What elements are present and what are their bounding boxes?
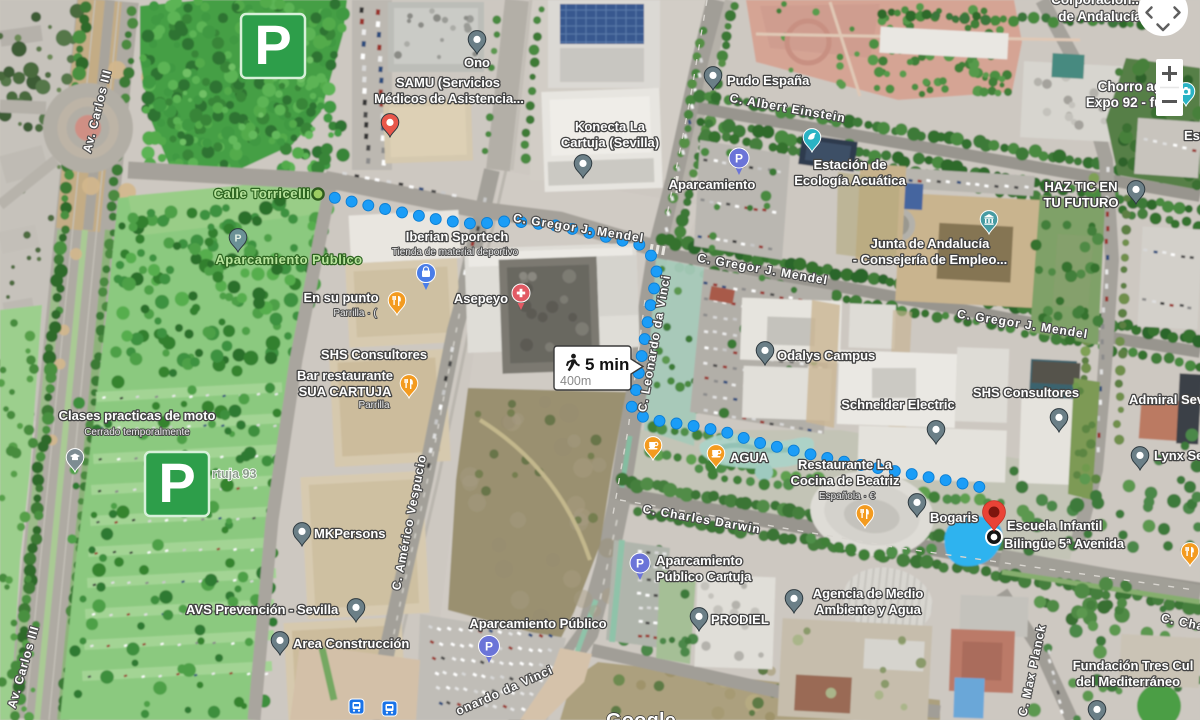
svg-text:Estación de: Estación de — [814, 157, 887, 172]
svg-text:HAZ TIC EN: HAZ TIC EN — [1045, 179, 1118, 194]
svg-text:5 min: 5 min — [585, 355, 629, 374]
svg-text:Escuela Infantil: Escuela Infantil — [1007, 518, 1102, 533]
svg-text:P: P — [636, 557, 644, 571]
svg-text:SAMU (Servicios: SAMU (Servicios — [396, 75, 500, 90]
svg-text:Google: Google — [606, 710, 676, 720]
svg-text:- Consejería de Empleo...: - Consejería de Empleo... — [853, 252, 1008, 267]
svg-text:Fundación Tres Cul: Fundación Tres Cul — [1073, 658, 1194, 673]
svg-text:TU FUTURO: TU FUTURO — [1043, 195, 1118, 210]
svg-text:Restaurante La: Restaurante La — [798, 457, 893, 472]
svg-text:SHS Consultores: SHS Consultores — [321, 347, 427, 362]
svg-text:SUA CARTUJA: SUA CARTUJA — [299, 384, 392, 399]
svg-text:Area Construcción: Area Construcción — [293, 636, 409, 651]
svg-text:Aparcamiento Público: Aparcamiento Público — [215, 252, 362, 267]
svg-text:P: P — [158, 451, 195, 514]
svg-text:Est: Est — [1184, 128, 1200, 143]
svg-text:de Andalucía: de Andalucía — [1058, 9, 1142, 24]
svg-text:Iberian Sportech: Iberian Sportech — [406, 229, 509, 244]
svg-text:del Mediterráneo: del Mediterráneo — [1076, 674, 1180, 689]
svg-text:Española · €: Española · € — [819, 491, 876, 502]
svg-text:Médicos de Asistencia...: Médicos de Asistencia... — [374, 91, 524, 106]
svg-text:Aparcamiento: Aparcamiento — [656, 553, 743, 568]
svg-text:Cartuja (Sevilla): Cartuja (Sevilla) — [561, 135, 659, 150]
svg-text:Tienda de material deportivo: Tienda de material deportivo — [392, 247, 519, 258]
svg-text:Bar restaurante: Bar restaurante — [297, 368, 393, 383]
svg-text:Admiral Sev: Admiral Sev — [1129, 392, 1200, 407]
svg-text:Odalys Campus: Odalys Campus — [777, 348, 875, 363]
svg-text:400m: 400m — [560, 374, 591, 388]
svg-text:rtuja 93: rtuja 93 — [212, 467, 257, 481]
svg-text:Clases practicas de moto: Clases practicas de moto — [59, 408, 216, 423]
svg-text:PRODIEL: PRODIEL — [711, 612, 769, 627]
svg-text:P: P — [254, 13, 291, 76]
svg-text:Pudo España: Pudo España — [727, 73, 810, 88]
svg-text:P: P — [234, 233, 241, 245]
svg-text:SHS Consultores: SHS Consultores — [973, 385, 1079, 400]
svg-text:En su punto: En su punto — [303, 290, 378, 305]
svg-text:Parrilla: Parrilla — [358, 400, 390, 411]
svg-text:Cocina de Beatriz: Cocina de Beatriz — [790, 473, 900, 488]
svg-text:AVS Prevención - Sevilla: AVS Prevención - Sevilla — [186, 602, 339, 617]
svg-text:Aparcamiento Público: Aparcamiento Público — [469, 616, 606, 631]
svg-text:Asepeyo: Asepeyo — [454, 291, 508, 306]
svg-text:Ono: Ono — [464, 55, 490, 70]
svg-text:Junta de Andalucía: Junta de Andalucía — [871, 236, 990, 251]
svg-text:Parrilla · (: Parrilla · ( — [333, 308, 377, 319]
svg-text:P: P — [735, 152, 743, 166]
svg-text:Agencia de Medio: Agencia de Medio — [813, 586, 924, 601]
svg-text:Ambiente y Agua: Ambiente y Agua — [815, 602, 921, 617]
svg-text:Aparcamiento: Aparcamiento — [669, 177, 756, 192]
svg-text:Público Cartuja: Público Cartuja — [656, 569, 752, 584]
svg-text:Corporación..: Corporación.. — [1051, 0, 1139, 7]
svg-text:Bogaris: Bogaris — [930, 510, 978, 525]
svg-text:MKPersons: MKPersons — [314, 526, 386, 541]
svg-text:Calle Torricelli: Calle Torricelli — [214, 186, 311, 201]
svg-text:Konecta La: Konecta La — [575, 119, 646, 134]
svg-text:Cerrado temporalmente: Cerrado temporalmente — [84, 427, 190, 438]
svg-text:P: P — [485, 640, 493, 654]
svg-text:AGUA: AGUA — [730, 450, 769, 465]
svg-text:Ecología Acuática: Ecología Acuática — [794, 173, 906, 188]
svg-text:Bilingüe 5ª Avenida: Bilingüe 5ª Avenida — [1004, 536, 1125, 551]
svg-text:Schneider Electric: Schneider Electric — [841, 397, 954, 412]
svg-text:Lynx Se: Lynx Se — [1154, 448, 1200, 463]
